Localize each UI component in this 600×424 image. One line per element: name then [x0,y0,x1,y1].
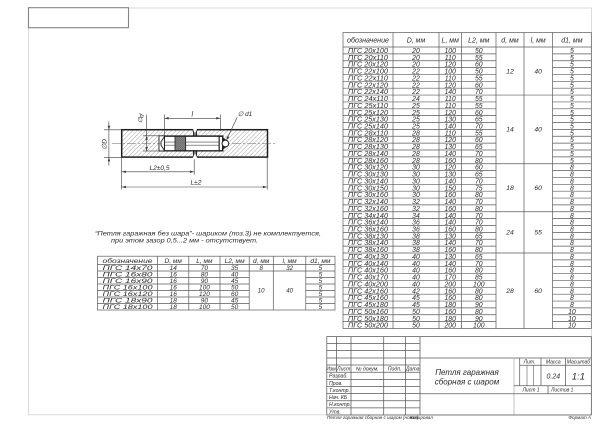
svg-text:40: 40 [534,68,542,75]
svg-text:d1, мм: d1, мм [310,258,331,265]
svg-text:40: 40 [286,288,293,295]
svg-text:Дата: Дата [405,367,420,373]
svg-text:d1, мм: d1, мм [561,37,582,44]
svg-text:ПГС 50х200: ПГС 50х200 [348,323,388,330]
svg-text:50: 50 [412,323,420,330]
svg-text:8: 8 [260,265,264,272]
svg-text:ПГС 18х100: ПГС 18х100 [103,304,154,311]
svg-text:Нач. КБ: Нач. КБ [329,395,348,401]
svg-text:L2, мм: L2, мм [468,37,489,44]
svg-text:55: 55 [534,230,542,237]
svg-text:D, мм: D, мм [164,258,182,265]
svg-text:L2±0,5: L2±0,5 [149,165,169,172]
svg-text:Листов 1: Листов 1 [550,388,574,394]
svg-text:Масштаб: Масштаб [567,359,591,365]
svg-text:Т.контр.: Т.контр. [329,388,350,394]
svg-text:0.24: 0.24 [546,374,560,381]
svg-text:L, мм: L, мм [196,258,213,265]
svg-text:Копировал: Копировал [410,415,433,420]
svg-text:14: 14 [506,127,514,134]
svg-text:Петля гаражная: Петля гаражная [435,368,499,377]
svg-text:∅ d1: ∅ d1 [238,111,253,118]
svg-text:5: 5 [319,304,323,311]
svg-text:100: 100 [473,323,485,330]
svg-text:100: 100 [199,304,210,311]
svg-text:1:1: 1:1 [572,372,585,383]
svg-text:24: 24 [505,230,514,237]
svg-text:№ докум.: № докум. [356,367,379,373]
svg-text:60: 60 [534,185,542,192]
svg-text:L, мм: L, мм [442,37,460,44]
svg-text:Формат А: Формат А [568,415,591,420]
svg-text:10: 10 [258,288,265,295]
svg-text:Разраб.: Разраб. [329,374,348,380]
svg-text:10: 10 [568,323,576,330]
svg-text:200: 200 [443,323,456,330]
svg-text:Петля гаражная сборная с шаром: Петля гаражная сборная с шаром (новая) [327,415,419,420]
svg-text:обозначение: обозначение [347,36,389,44]
svg-text:60: 60 [534,288,542,295]
svg-text:D, мм: D, мм [407,37,426,44]
svg-text:Лит.: Лит. [523,359,536,365]
svg-text:при этом зазор 0,5...2 мм - от: при этом зазор 0,5...2 мм - отсутствует. [111,238,258,245]
svg-text:сборная с шаром: сборная с шаром [435,378,500,387]
svg-text:d, мм: d, мм [501,37,519,44]
svg-text:Пров.: Пров. [329,381,343,387]
svg-text:40: 40 [534,127,542,134]
svg-text:50: 50 [231,304,239,311]
svg-text:L2, мм: L2, мм [225,258,246,265]
svg-text:18: 18 [506,185,514,192]
svg-text:28: 28 [505,288,514,295]
svg-text:Лист 1: Лист 1 [522,388,540,394]
svg-text:18: 18 [170,304,178,311]
svg-text:∅D: ∅D [101,139,108,150]
svg-text:12: 12 [506,68,514,75]
svg-text:Н.контр.: Н.контр. [329,402,351,408]
svg-text:Подп.: Подп. [388,367,402,373]
svg-text:Лист: Лист [336,367,351,373]
svg-text:L±2: L±2 [191,179,202,186]
svg-text:Изм.: Изм. [326,367,337,373]
svg-text:l, мм: l, мм [531,37,546,44]
svg-text:32: 32 [286,265,293,272]
svg-text:обозначение: обозначение [103,257,153,265]
svg-text:Масса: Масса [546,359,561,365]
svg-text:“Петля гаражная без шара”- шар: “Петля гаражная без шара”- шариком (поз.… [95,229,321,237]
